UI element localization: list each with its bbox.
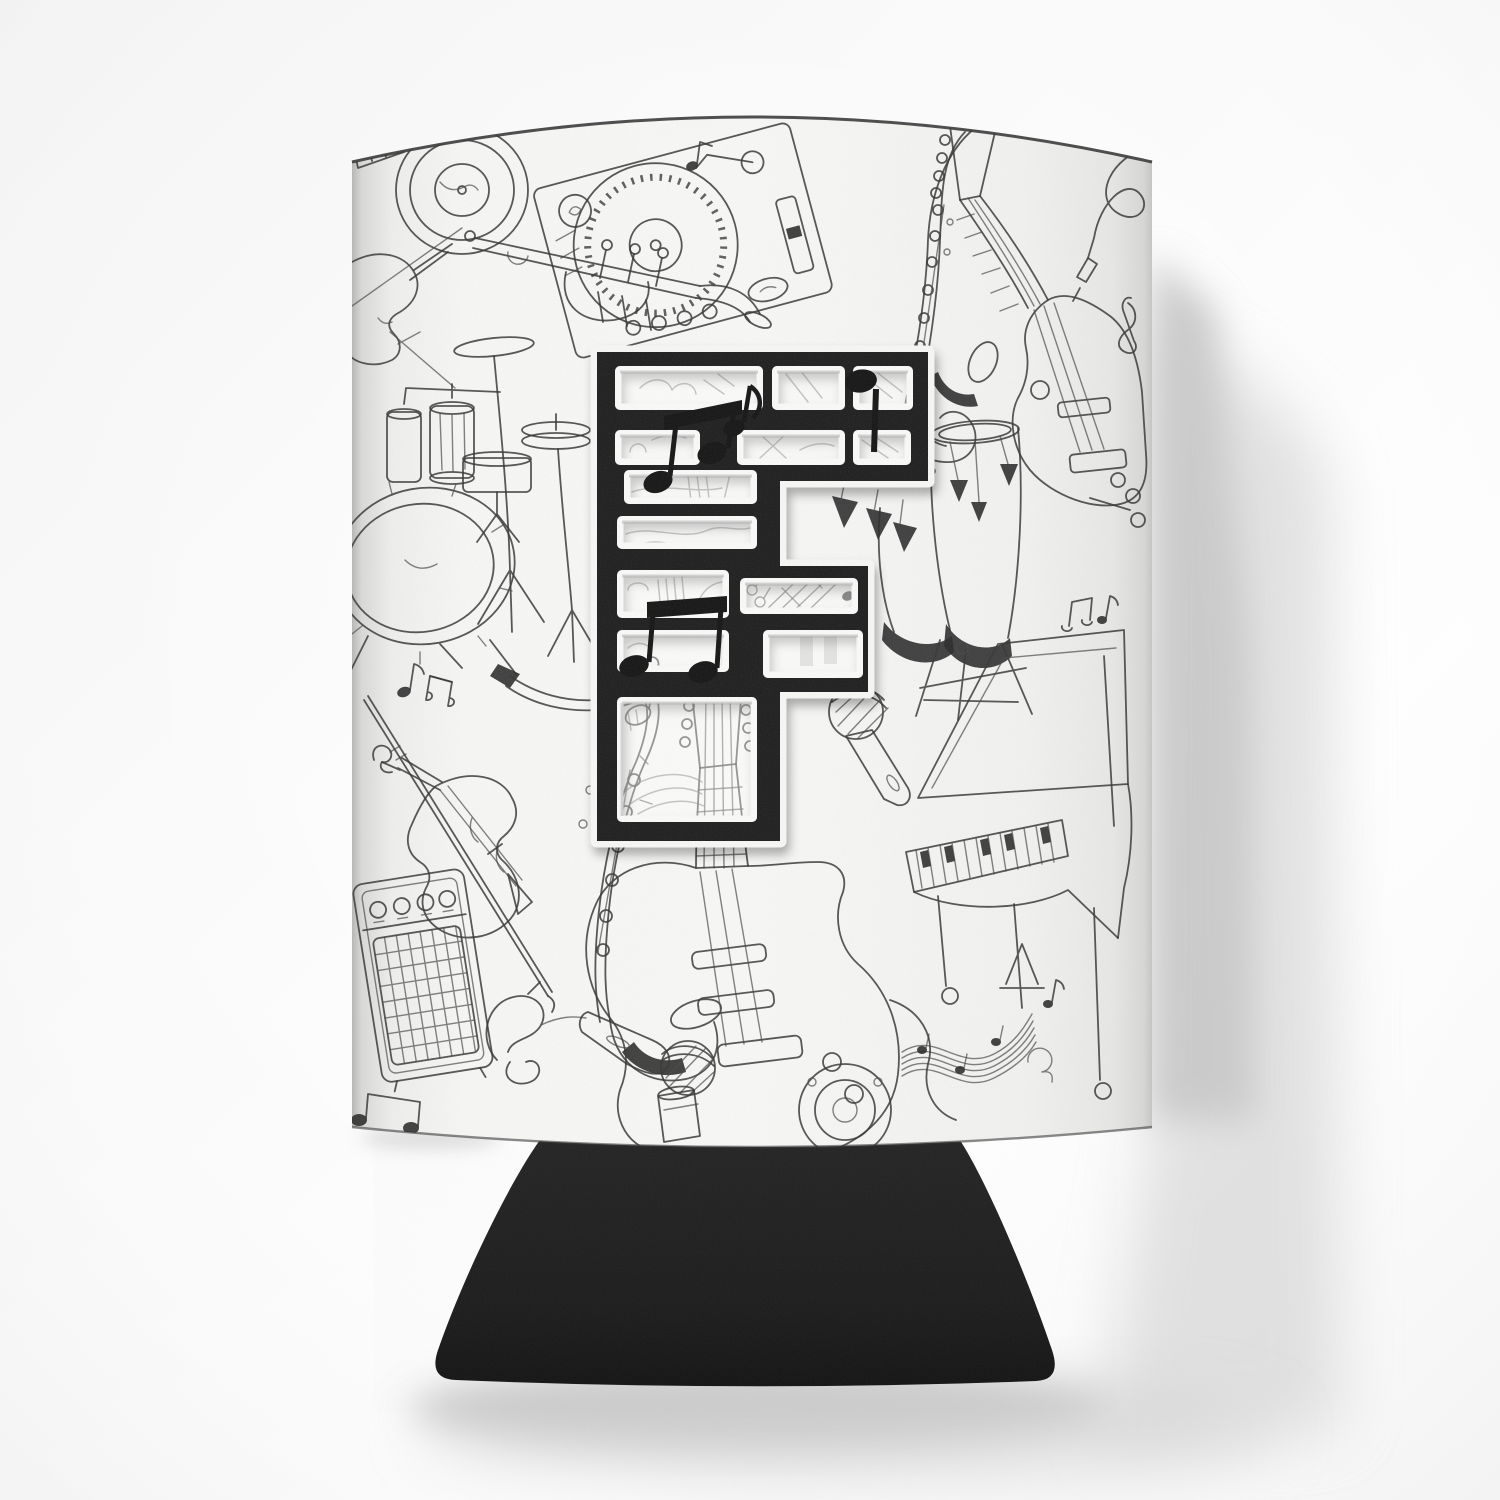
photo-canvas [0,0,1500,1500]
fabric-grain [340,60,1170,1180]
koozie-product-photo: White fabric can cooler (koozie) printed… [0,0,1500,1500]
koozie-base [435,1136,1054,1386]
